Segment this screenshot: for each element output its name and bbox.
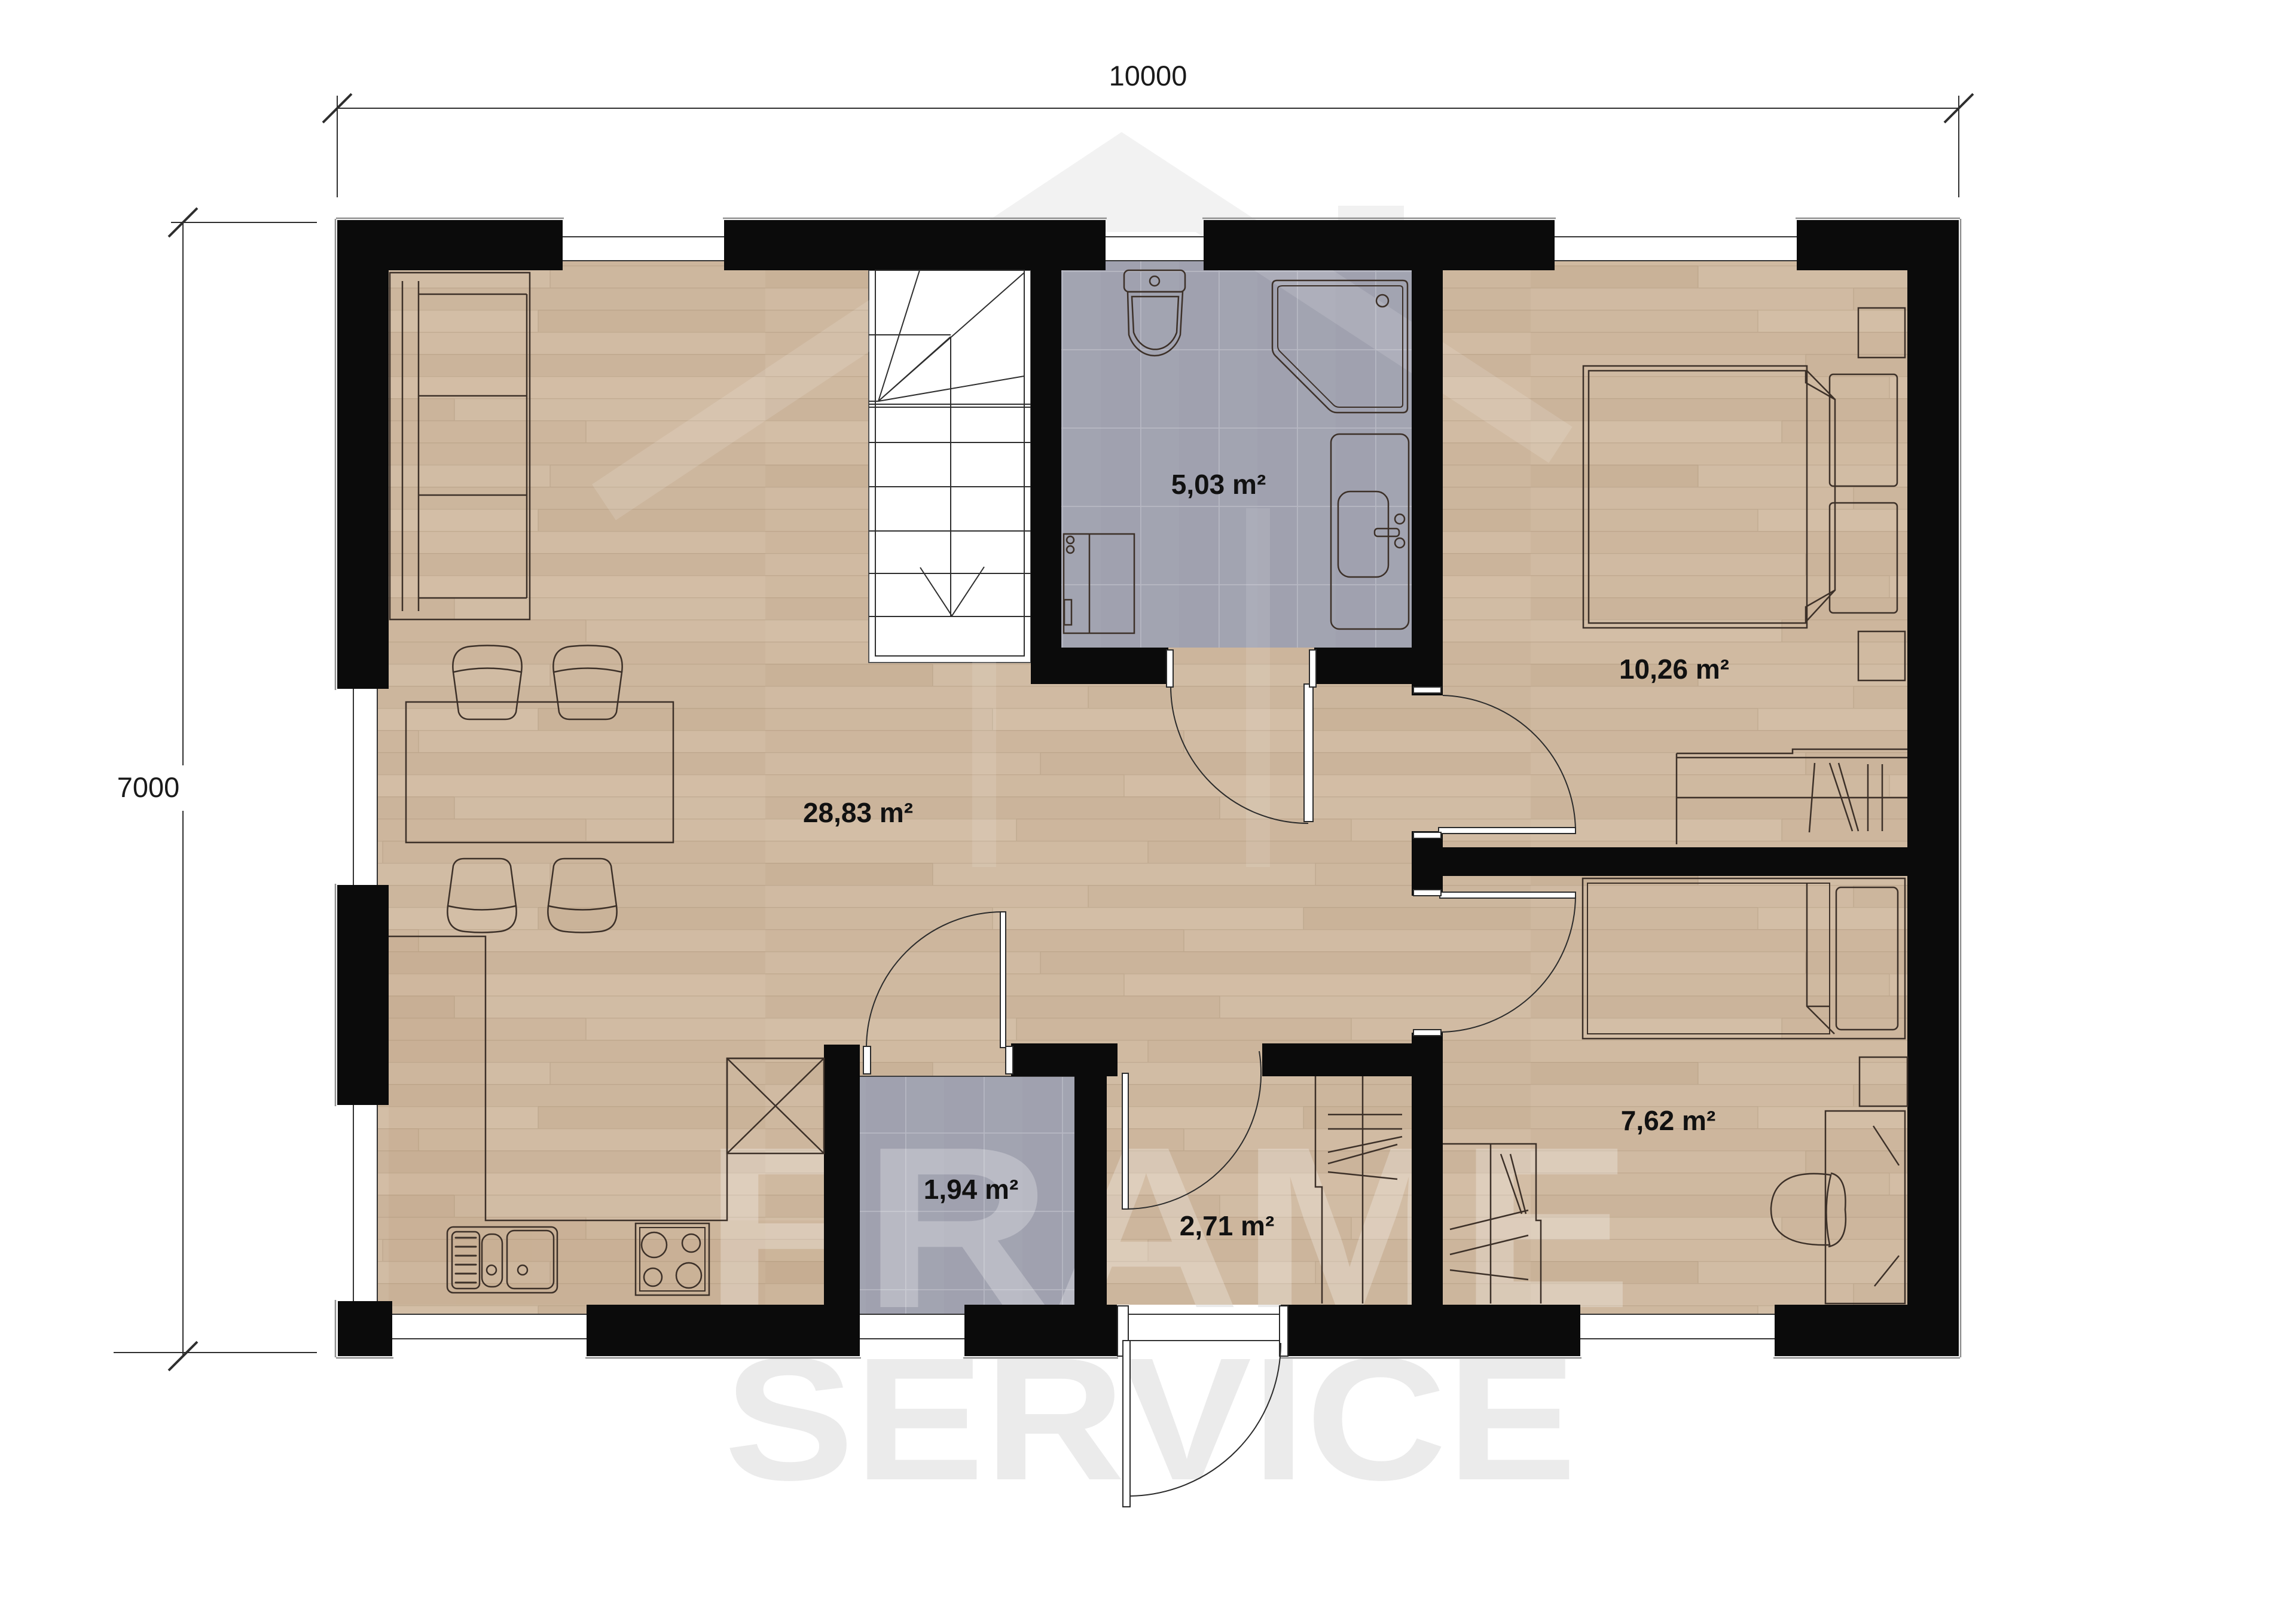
- svg-text:7,62 m²: 7,62 m²: [1621, 1105, 1716, 1136]
- svg-text:2,71 m²: 2,71 m²: [1180, 1210, 1275, 1241]
- svg-text:28,83 m²: 28,83 m²: [803, 797, 913, 828]
- svg-text:10,26 m²: 10,26 m²: [1619, 654, 1729, 685]
- svg-text:10000: 10000: [1109, 60, 1187, 91]
- svg-text:7000: 7000: [117, 771, 180, 803]
- svg-text:1,94 m²: 1,94 m²: [924, 1174, 1019, 1205]
- svg-text:5,03 m²: 5,03 m²: [1171, 469, 1266, 500]
